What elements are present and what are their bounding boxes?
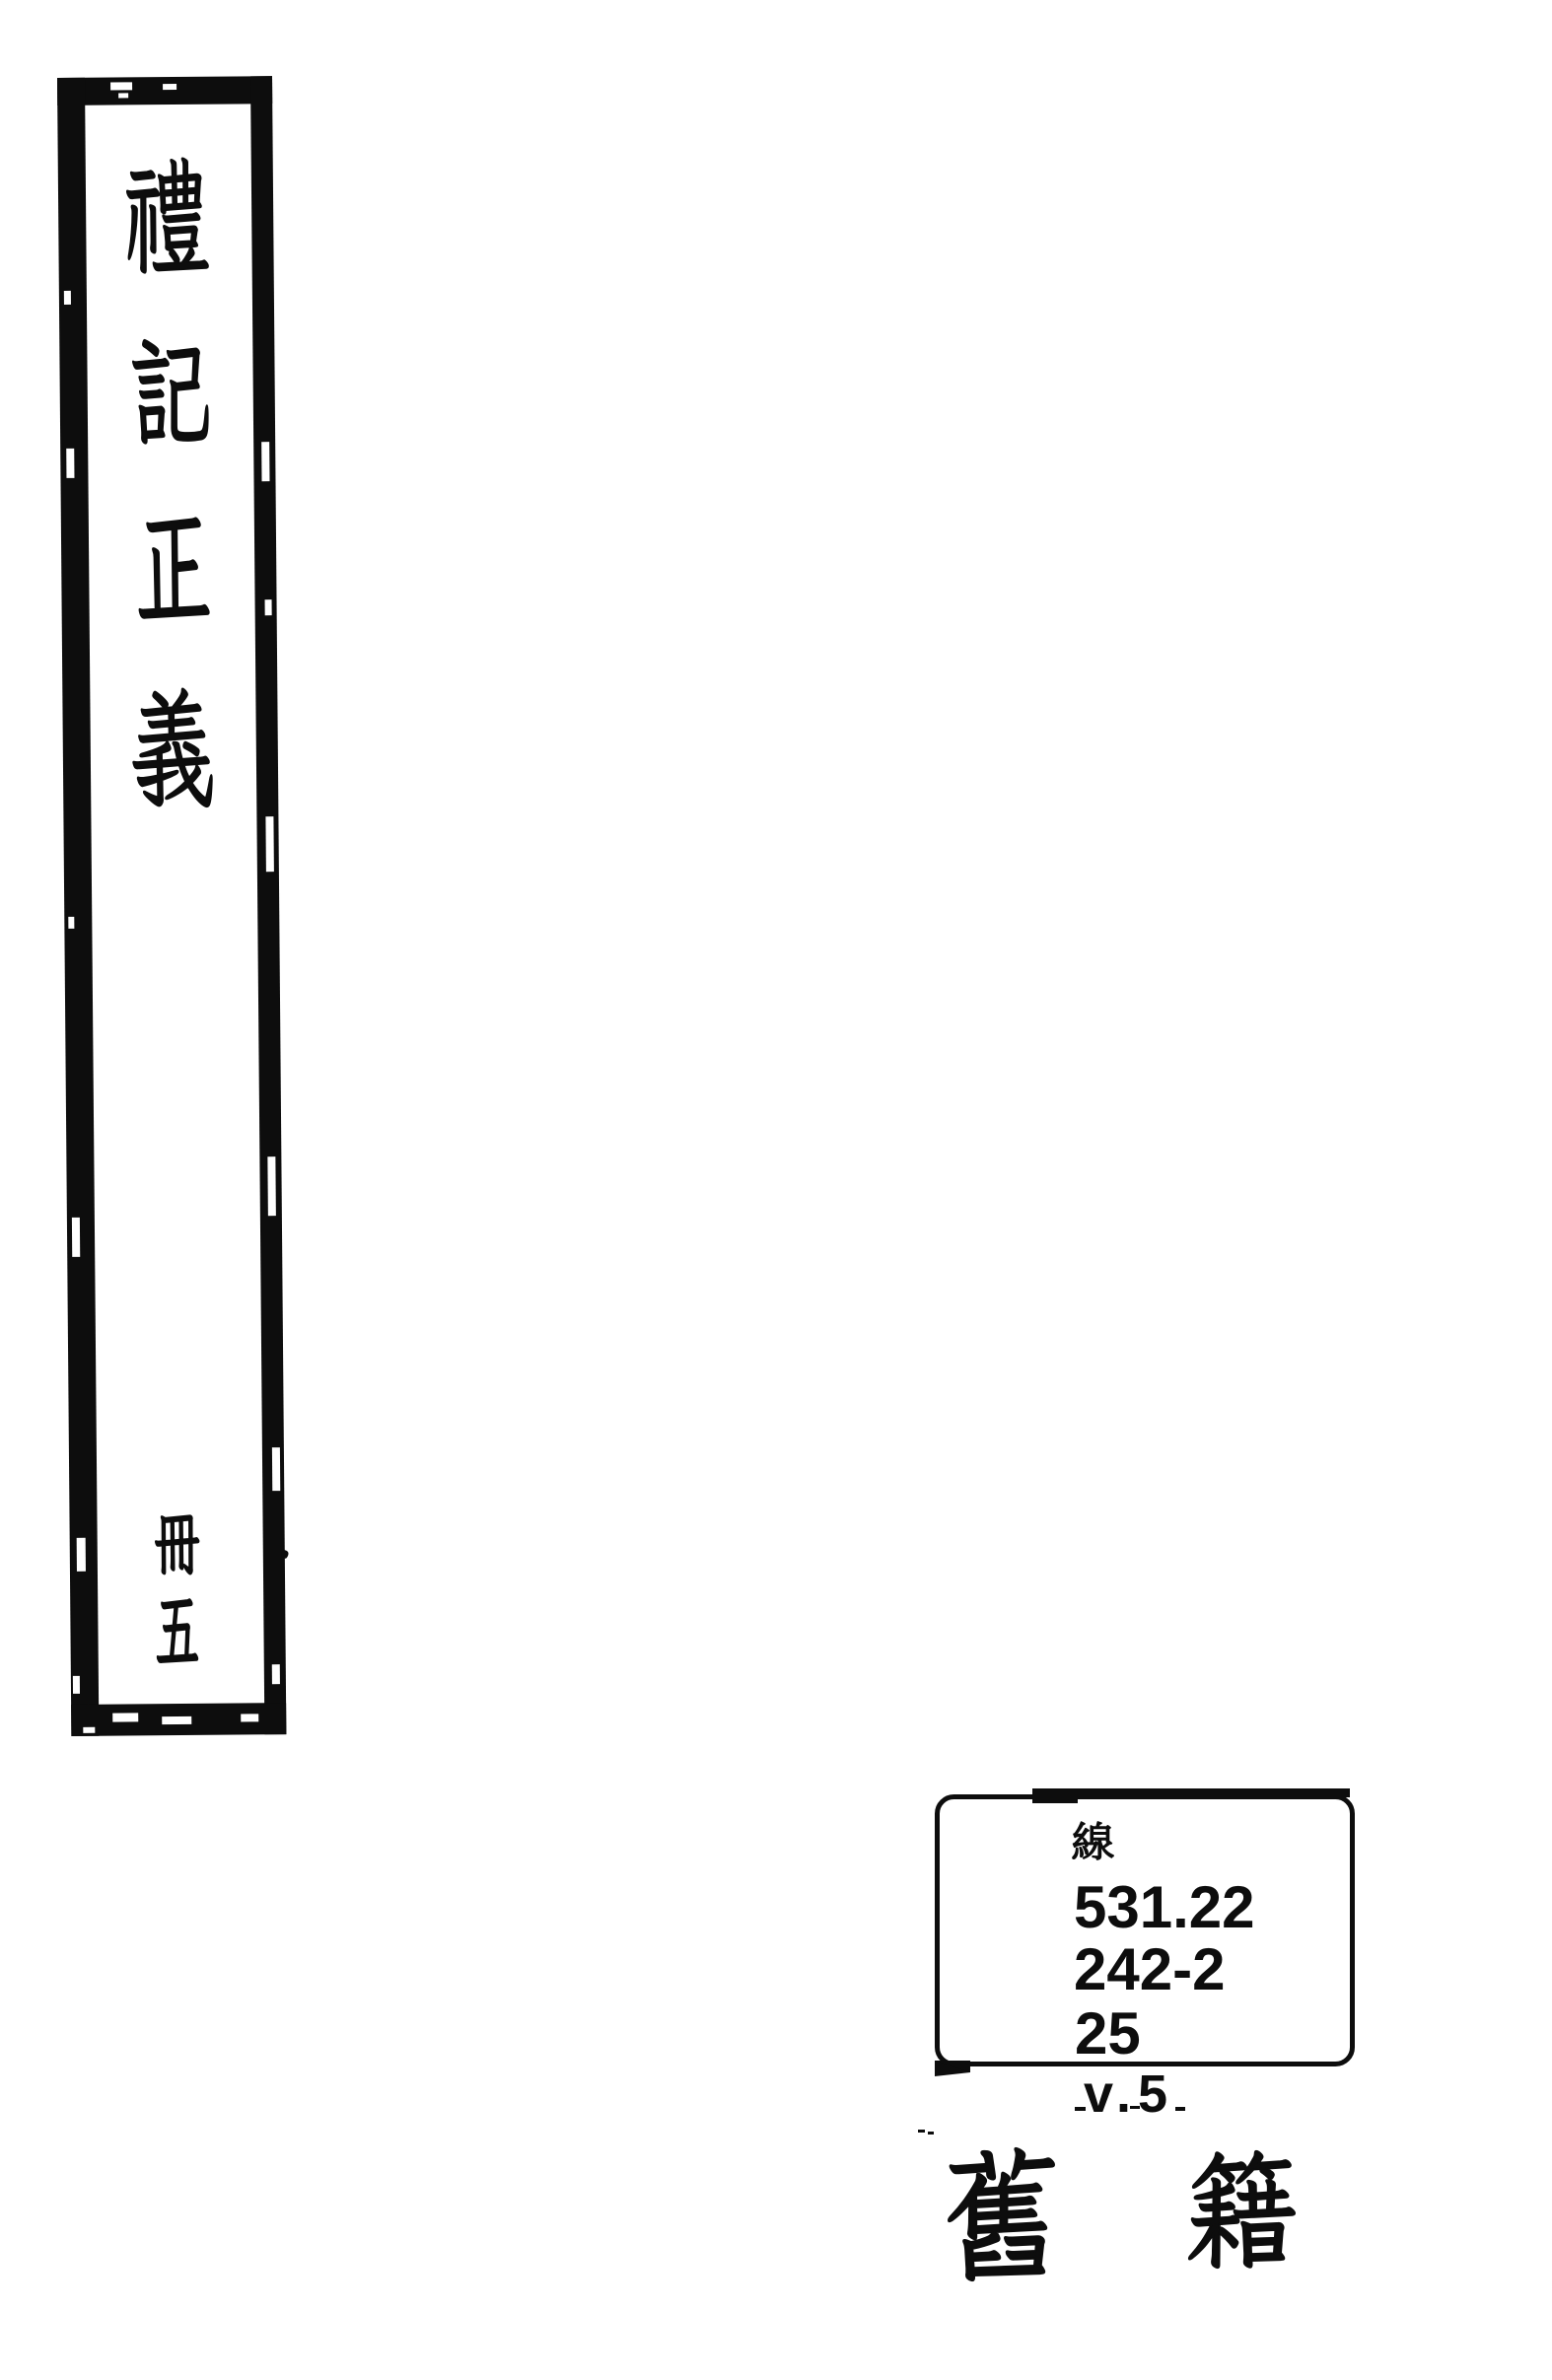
svg-text:531.22: 531.22 (1074, 1874, 1255, 1940)
svg-text:v.5: v.5 (1084, 2065, 1174, 2124)
svg-text:25: 25 (1075, 2000, 1141, 2066)
svg-text:242-2: 242-2 (1074, 1936, 1225, 2002)
